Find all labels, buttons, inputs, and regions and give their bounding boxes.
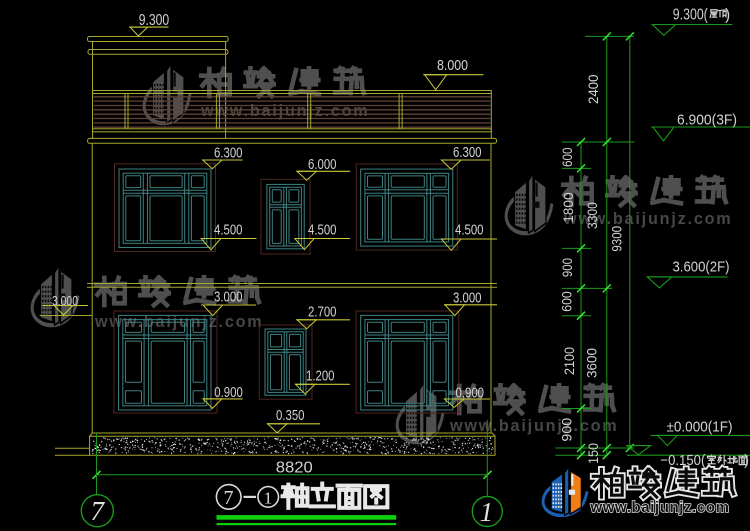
svg-text:7: 7 — [223, 487, 234, 509]
svg-text:600: 600 — [560, 291, 575, 312]
svg-text:3.600(2F): 3.600(2F) — [673, 258, 730, 275]
svg-text:600: 600 — [560, 147, 575, 167]
svg-text:1.200: 1.200 — [306, 368, 335, 384]
svg-text:6.300: 6.300 — [214, 146, 243, 162]
svg-text:900: 900 — [560, 418, 575, 442]
svg-text:900: 900 — [560, 258, 575, 277]
svg-text:6.900(3F): 6.900(3F) — [677, 112, 737, 129]
svg-text:2.700: 2.700 — [308, 305, 337, 321]
svg-text:1800: 1800 — [561, 192, 576, 222]
svg-text:3600: 3600 — [585, 348, 600, 378]
svg-text:3300: 3300 — [585, 202, 600, 229]
svg-text:): ) — [725, 7, 731, 24]
svg-text:7: 7 — [91, 496, 106, 526]
svg-text:9.300(: 9.300( — [673, 7, 709, 24]
svg-text:3.000: 3.000 — [214, 289, 243, 305]
svg-text:8820: 8820 — [276, 459, 313, 476]
svg-text:8.000: 8.000 — [437, 57, 468, 74]
svg-text:4.500: 4.500 — [214, 223, 243, 239]
svg-text:3.000: 3.000 — [453, 290, 482, 306]
svg-text:6.300: 6.300 — [453, 145, 482, 161]
svg-text:4.500: 4.500 — [455, 223, 484, 239]
svg-text:3.000: 3.000 — [52, 293, 78, 308]
svg-text:9300: 9300 — [610, 226, 625, 252]
svg-text:9.300: 9.300 — [139, 12, 170, 29]
svg-text:www.baijunjz.com: www.baijunjz.com — [449, 417, 619, 435]
svg-text:150: 150 — [586, 443, 601, 464]
svg-text:4.500: 4.500 — [308, 223, 337, 239]
svg-text:6.000: 6.000 — [308, 157, 337, 173]
svg-text:2100: 2100 — [562, 347, 577, 375]
svg-text:www.baijunjz.com: www.baijunjz.com — [590, 499, 730, 516]
svg-text:±0.000(1F): ±0.000(1F) — [667, 418, 733, 435]
svg-text:1: 1 — [480, 497, 494, 527]
svg-text:2400: 2400 — [586, 74, 601, 104]
svg-text:1: 1 — [264, 489, 273, 508]
svg-text:): ) — [744, 453, 749, 469]
svg-text:0.350: 0.350 — [276, 408, 305, 424]
